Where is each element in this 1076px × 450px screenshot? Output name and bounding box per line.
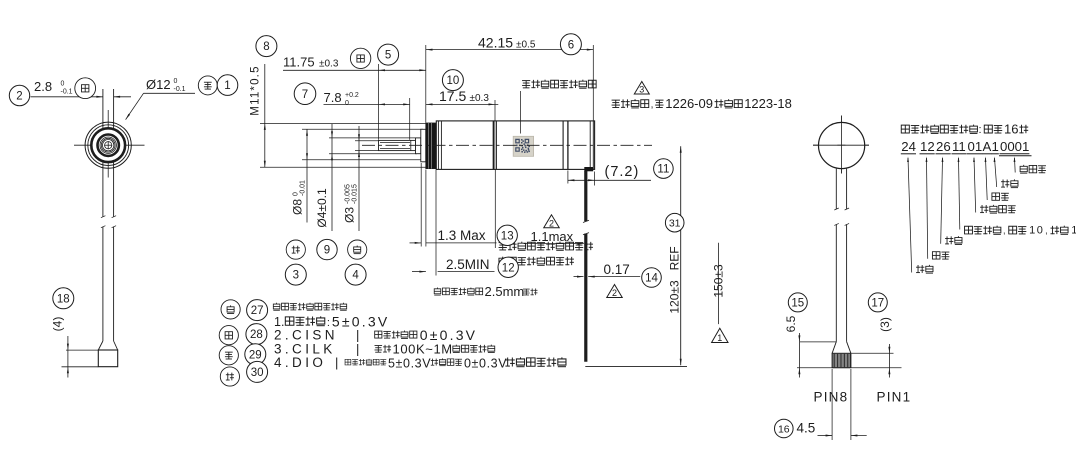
svg-text:15: 15 bbox=[791, 298, 804, 310]
svg-text:26: 26 bbox=[936, 139, 951, 154]
svg-text:12: 12 bbox=[502, 262, 515, 274]
svg-text:4: 4 bbox=[352, 270, 359, 282]
svg-text:1: 1 bbox=[992, 139, 999, 154]
svg-text:10: 10 bbox=[1029, 225, 1044, 237]
svg-text:PIN1: PIN1 bbox=[877, 390, 912, 405]
svg-text:42.15: 42.15 bbox=[478, 35, 513, 51]
svg-text:0±0.3V: 0±0.3V bbox=[420, 327, 477, 343]
svg-text:17: 17 bbox=[871, 298, 884, 310]
svg-text:2: 2 bbox=[549, 218, 554, 228]
svg-text:7: 7 bbox=[302, 89, 308, 101]
svg-text:±0.3: ±0.3 bbox=[470, 93, 490, 104]
svg-text:14: 14 bbox=[645, 273, 658, 285]
svg-text:,: , bbox=[1045, 226, 1048, 236]
svg-text:|: | bbox=[356, 327, 359, 342]
svg-text:3: 3 bbox=[639, 85, 644, 95]
svg-text:5: 5 bbox=[385, 50, 391, 62]
svg-text:-0.005: -0.005 bbox=[345, 184, 352, 204]
svg-text:PIN8: PIN8 bbox=[814, 390, 849, 405]
svg-text:5±0.3V: 5±0.3V bbox=[332, 313, 389, 329]
svg-text:+0.2: +0.2 bbox=[345, 92, 359, 99]
svg-text:0: 0 bbox=[61, 81, 65, 88]
svg-text:Ø3: Ø3 bbox=[343, 207, 357, 223]
svg-text:(3): (3) bbox=[878, 317, 892, 332]
svg-text:16: 16 bbox=[778, 423, 790, 435]
svg-text:0: 0 bbox=[293, 192, 300, 196]
svg-text:10: 10 bbox=[447, 75, 460, 87]
svg-text:1.3 Max: 1.3 Max bbox=[438, 228, 486, 243]
svg-text:-0.01: -0.01 bbox=[300, 180, 307, 196]
svg-text:31: 31 bbox=[669, 217, 681, 229]
svg-text:-0.1: -0.1 bbox=[61, 89, 73, 96]
svg-text:2.8: 2.8 bbox=[34, 79, 52, 94]
svg-text:1.1max: 1.1max bbox=[531, 229, 574, 244]
svg-text:30: 30 bbox=[251, 367, 264, 379]
svg-text:7.8: 7.8 bbox=[324, 90, 342, 105]
svg-text:0: 0 bbox=[174, 78, 178, 85]
svg-text:1: 1 bbox=[224, 80, 230, 92]
svg-text:|: | bbox=[335, 355, 338, 370]
svg-text:11.75: 11.75 bbox=[283, 55, 315, 70]
svg-text:0±0.3V: 0±0.3V bbox=[464, 356, 507, 370]
svg-text:Ø4±0.1: Ø4±0.1 bbox=[315, 188, 329, 228]
svg-text:18: 18 bbox=[57, 293, 70, 305]
svg-text:6.5: 6.5 bbox=[784, 315, 798, 332]
svg-text:2: 2 bbox=[612, 288, 617, 298]
svg-text:6: 6 bbox=[568, 39, 574, 51]
svg-text:28: 28 bbox=[250, 329, 263, 341]
svg-text:Ø8: Ø8 bbox=[291, 199, 305, 215]
svg-text:2.5MIN: 2.5MIN bbox=[446, 257, 490, 272]
svg-text:A: A bbox=[983, 139, 992, 154]
svg-text:01: 01 bbox=[968, 139, 983, 154]
svg-text:8: 8 bbox=[263, 41, 269, 53]
svg-text:4.DIO: 4.DIO bbox=[274, 355, 326, 370]
svg-text:Ø12: Ø12 bbox=[146, 77, 171, 92]
svg-text:1226-09: 1226-09 bbox=[665, 96, 713, 111]
svg-text:-0.1: -0.1 bbox=[174, 86, 186, 93]
svg-text:±0.3: ±0.3 bbox=[319, 59, 339, 70]
svg-text:16: 16 bbox=[1004, 122, 1018, 137]
svg-text:9: 9 bbox=[324, 245, 330, 257]
svg-text:0: 0 bbox=[345, 100, 349, 107]
svg-text:4.5: 4.5 bbox=[797, 421, 816, 436]
svg-text:(4): (4) bbox=[51, 317, 65, 332]
svg-text:17.5: 17.5 bbox=[439, 88, 466, 104]
svg-text:13: 13 bbox=[501, 230, 514, 242]
svg-text:2.5mm: 2.5mm bbox=[485, 284, 525, 299]
svg-text:-0.015: -0.015 bbox=[352, 184, 359, 204]
svg-text:12: 12 bbox=[920, 139, 935, 154]
svg-text::: : bbox=[979, 124, 982, 136]
svg-text:3: 3 bbox=[293, 270, 299, 282]
svg-text:0.17: 0.17 bbox=[604, 262, 630, 277]
svg-text:±0.5: ±0.5 bbox=[516, 40, 536, 51]
svg-text:100K~1M: 100K~1M bbox=[393, 342, 453, 357]
svg-text:|: | bbox=[356, 341, 359, 356]
svg-text:2.CISN: 2.CISN bbox=[274, 327, 338, 342]
svg-text:M11*0.5: M11*0.5 bbox=[250, 65, 262, 115]
svg-text:1223-18: 1223-18 bbox=[744, 96, 792, 111]
svg-text:11: 11 bbox=[657, 164, 669, 176]
svg-text:5±0.3V: 5±0.3V bbox=[388, 356, 431, 370]
svg-text:24: 24 bbox=[901, 139, 916, 154]
svg-text:11: 11 bbox=[952, 139, 966, 154]
svg-text:(7.2): (7.2) bbox=[605, 164, 640, 180]
svg-text:150±3: 150±3 bbox=[712, 264, 726, 298]
svg-text:2: 2 bbox=[16, 91, 22, 103]
svg-text:,: , bbox=[651, 100, 654, 111]
svg-text:1: 1 bbox=[717, 333, 722, 343]
svg-text:,: , bbox=[1003, 226, 1006, 236]
svg-text:11: 11 bbox=[1071, 225, 1076, 237]
svg-text:29: 29 bbox=[249, 349, 262, 361]
svg-text:120±3 REF: 120±3 REF bbox=[668, 246, 682, 313]
svg-text:0001: 0001 bbox=[1000, 139, 1029, 154]
svg-text:27: 27 bbox=[251, 305, 264, 317]
